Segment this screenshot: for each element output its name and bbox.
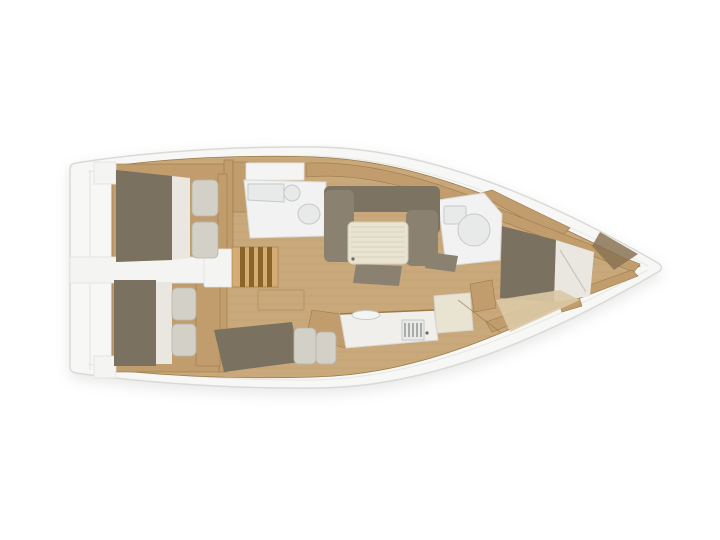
salon-table <box>348 222 408 264</box>
sheet-aft-bottom <box>156 282 172 364</box>
toilet-icon <box>298 204 320 224</box>
washbasin-icon <box>284 185 300 201</box>
galley-sink-icon <box>352 311 380 320</box>
shower-icon <box>458 214 490 246</box>
pillow <box>172 288 196 320</box>
cabinet-bottom-cabin <box>196 282 220 366</box>
pillow <box>172 324 196 356</box>
stern-bench-top <box>94 162 116 184</box>
head-aft-top-locker <box>246 163 304 180</box>
nav-seat <box>470 280 496 312</box>
headboard-top-cabin <box>218 174 227 260</box>
pillow <box>192 222 218 258</box>
pillow <box>192 180 218 216</box>
mattress-aft-top <box>116 170 172 262</box>
pillow <box>294 328 316 364</box>
head-aft-counter <box>248 184 284 202</box>
stern-bench-bottom <box>94 356 116 378</box>
floorplan-canvas <box>0 0 720 540</box>
sheet-aft-top <box>172 176 190 260</box>
mattress-aft-bottom <box>114 280 156 366</box>
yacht-floorplan <box>0 0 720 540</box>
companionway-steps <box>232 247 278 287</box>
table-leg-dot <box>351 257 354 260</box>
stove-knob-dot <box>425 331 428 334</box>
salon-stool <box>353 264 402 286</box>
chart-table <box>434 293 473 333</box>
pillow <box>316 332 336 364</box>
